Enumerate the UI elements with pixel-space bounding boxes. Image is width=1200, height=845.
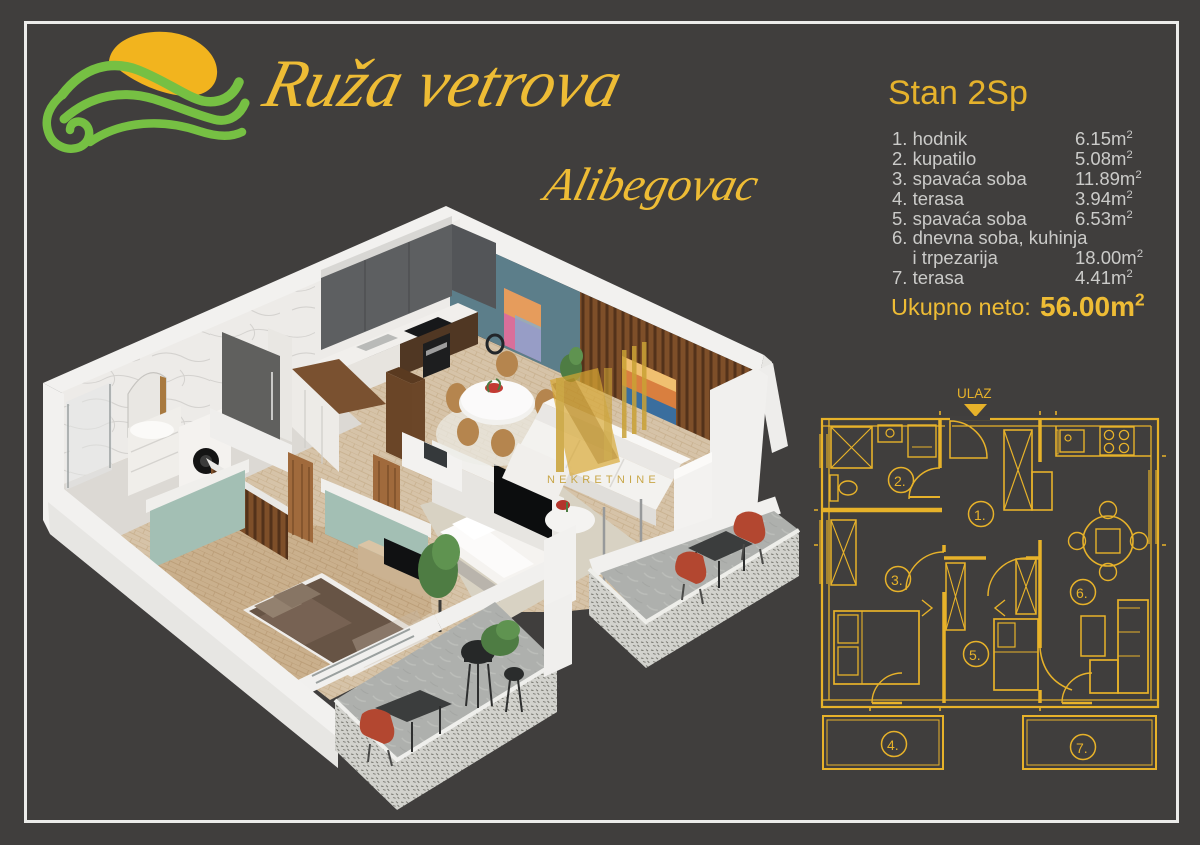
svg-text:4.: 4. [887, 737, 899, 753]
svg-text:3.: 3. [891, 572, 903, 588]
svg-text:ULAZ: ULAZ [957, 386, 992, 401]
svg-text:7.: 7. [1076, 740, 1088, 756]
svg-text:5.: 5. [969, 647, 981, 663]
svg-text:6.: 6. [1076, 585, 1088, 601]
svg-text:NEKRETNINE: NEKRETNINE [547, 474, 660, 486]
svg-text:2.: 2. [894, 473, 906, 489]
svg-text:1.: 1. [974, 507, 986, 523]
